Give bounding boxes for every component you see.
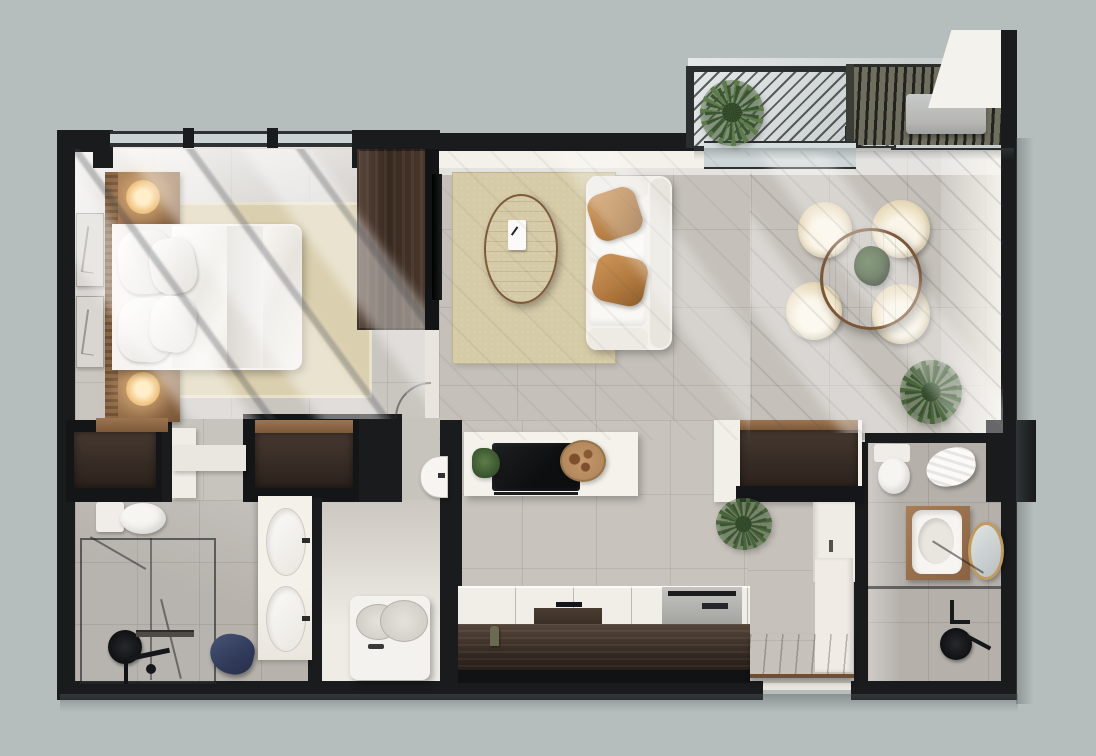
lighting — [0, 0, 1096, 756]
entry-wall-band — [815, 558, 853, 672]
wall-bottom-left — [57, 681, 763, 700]
pillow — [116, 228, 176, 296]
sofa-backrest — [650, 178, 670, 348]
table-lamp — [126, 372, 160, 406]
hall-cabinet-frame — [736, 486, 864, 502]
mullion-shadow — [170, 149, 425, 419]
bedroom-window — [110, 131, 356, 147]
closet-bench — [172, 445, 246, 471]
tall-white-unit — [813, 502, 855, 582]
bedroom-rug — [172, 202, 372, 398]
balcony-terrace-floor — [688, 58, 1004, 148]
bedroom-light-shafts — [75, 149, 425, 419]
cabinet-wood-front — [458, 624, 750, 674]
light-shaft — [544, 151, 750, 440]
dining-chair — [786, 282, 842, 340]
railing-shadow-hatch — [750, 151, 1003, 433]
light-shaft — [235, 149, 425, 419]
dining-light-shafts — [750, 151, 1003, 433]
entry-wood-mat — [750, 634, 854, 678]
washing-machine — [350, 596, 430, 680]
sliding-glass-door — [704, 141, 856, 169]
building-shadow-bottom — [60, 694, 1018, 712]
sofa-seat-cushion — [588, 200, 646, 262]
bottle — [490, 626, 499, 646]
bathroom-guest-floor — [868, 442, 1001, 683]
sofa-seat-cushion — [588, 264, 646, 326]
closet-bench — [172, 428, 196, 498]
shower-head — [940, 628, 972, 660]
vanity-sink — [266, 586, 306, 652]
wall-hung-basin — [420, 456, 448, 498]
washer-lid — [356, 604, 400, 640]
glass-brace — [932, 540, 984, 573]
washer-lid — [380, 600, 428, 642]
dining-chair — [872, 200, 930, 258]
toilet-tank — [874, 444, 910, 462]
tv-wall-strip — [425, 149, 439, 330]
wall-face-living — [436, 151, 716, 168]
building-shadows — [0, 0, 1096, 756]
walls — [0, 0, 1096, 756]
dresser-left-frame — [66, 420, 162, 502]
shower-glass-brace — [90, 536, 146, 570]
laundry — [0, 0, 1096, 756]
wall-right-block — [986, 420, 1036, 502]
wall-top-left-corner — [57, 130, 113, 152]
hall-cabinet-wood-front — [740, 430, 858, 488]
pillow — [145, 234, 200, 297]
balcony-railing-mesh — [690, 70, 896, 148]
wall-left — [57, 130, 75, 700]
wall-bottom-right — [851, 681, 1017, 700]
apartment-floor-base — [70, 143, 1005, 690]
light-shaft — [75, 149, 299, 419]
wall-art-frame — [76, 213, 104, 287]
faucet — [302, 538, 310, 543]
dresser-wood-front — [74, 432, 156, 488]
dining-chair — [872, 284, 930, 344]
tv-panel — [432, 174, 442, 300]
building-shadow-right — [1016, 138, 1034, 704]
hall-cabinet-base — [714, 420, 862, 502]
island-cooktop — [492, 443, 580, 491]
pergola-frame — [846, 64, 854, 142]
balcony — [0, 0, 1096, 756]
door-swing-arc — [395, 382, 431, 418]
wall-top-mid — [352, 130, 440, 168]
pillow — [116, 297, 175, 364]
nightstand — [118, 352, 180, 422]
glass-partition — [862, 586, 1002, 589]
vanity-sink — [266, 508, 306, 576]
dresser-wood-top — [255, 420, 353, 433]
entry — [0, 0, 1096, 756]
wall-balcony-right — [1001, 30, 1017, 148]
sofa-armrest — [588, 328, 648, 350]
accent-cushion — [584, 183, 646, 244]
toilet-tank — [96, 502, 124, 532]
living-dining-floor — [439, 151, 1003, 440]
laundry-floor — [322, 500, 448, 683]
balcony-door-track — [693, 133, 1003, 141]
mullion-shadow — [280, 149, 425, 419]
dresser-wood-front — [255, 433, 353, 488]
wall-bath-laundry — [308, 498, 322, 683]
herb-plant — [472, 448, 500, 478]
shower-handle — [128, 648, 170, 662]
book — [508, 220, 526, 250]
table-centerpiece-plant — [854, 246, 890, 286]
mullion-shadow — [75, 149, 342, 419]
dining-chair — [798, 202, 852, 258]
railing-corner-post — [845, 126, 861, 148]
light-shaft — [115, 149, 425, 419]
wall-bath-guest-top — [865, 433, 990, 443]
vanity-basin — [912, 510, 962, 574]
railing-left-post — [686, 66, 694, 148]
pergola-louvers — [850, 64, 1004, 145]
dining-table — [820, 228, 922, 330]
sofa-armrest — [588, 176, 648, 198]
sofa-base — [586, 176, 672, 350]
wood-vanity — [906, 506, 970, 580]
living-light-shafts — [439, 151, 750, 440]
exterior-white-wall — [928, 30, 1006, 108]
shower-pipe — [124, 660, 128, 684]
ac-unit — [906, 94, 986, 134]
white-towel — [924, 445, 979, 490]
balcony-shadow — [694, 148, 1014, 160]
dining-area — [0, 0, 1096, 756]
living-rug — [452, 172, 616, 364]
wall-laundry-kitchen — [440, 420, 462, 683]
oval-mirror — [968, 522, 1004, 580]
corridor-pier-large — [350, 414, 402, 502]
living-room — [0, 0, 1096, 756]
coffee-table — [484, 194, 558, 304]
washer-latch — [368, 644, 384, 649]
kitchen-countertop — [458, 586, 750, 628]
bathroom-main-floor — [75, 500, 310, 683]
railing-shadow-hatch — [439, 151, 750, 440]
hallway-closet — [0, 0, 1096, 756]
toilet-bowl — [878, 458, 910, 494]
dresser-right-frame — [243, 414, 359, 502]
kitchen — [0, 0, 1096, 756]
shower-glass-enclosure — [80, 538, 216, 684]
faucet — [302, 616, 310, 621]
wardrobe — [357, 149, 427, 330]
wall-entry-bath — [854, 442, 868, 683]
shower-knob — [146, 664, 156, 674]
serving-tray — [560, 440, 606, 482]
kitchen-island — [464, 432, 638, 496]
linear-drain — [136, 630, 194, 637]
bedroom-floor — [75, 148, 425, 422]
headboard-slat-wall — [105, 172, 121, 420]
floor-plan-render — [0, 0, 1096, 756]
bathroom-main — [0, 0, 1096, 756]
closet-corridor-floor — [75, 418, 445, 502]
light-shaft — [750, 151, 1003, 433]
kitchen-floor — [448, 420, 748, 683]
wall-right-lower — [1001, 502, 1017, 700]
dresser-wood-top — [96, 418, 168, 432]
accent-cushion — [590, 251, 651, 309]
lit-wall-band-right — [941, 151, 1003, 433]
shower-fixture — [950, 600, 970, 624]
toilet-bowl — [120, 503, 166, 534]
window-mullion — [183, 128, 194, 148]
shower-glass-door — [160, 599, 182, 679]
shower-head — [108, 630, 142, 664]
bathroom-guest — [0, 0, 1096, 756]
kitchen-sink — [534, 608, 602, 648]
hall-cabinet-wood-top — [740, 420, 858, 430]
blue-towel — [206, 630, 257, 678]
wall-top-dining — [891, 131, 1017, 150]
wall-right-upper — [1001, 131, 1017, 421]
wall-top-left-nub — [93, 130, 113, 168]
bedroom — [0, 0, 1096, 756]
pillow — [146, 293, 199, 355]
window-mullion — [267, 128, 278, 148]
hallway-plant — [716, 498, 772, 550]
cabinet-plinth — [458, 670, 750, 683]
shower-glass-panel — [150, 538, 152, 680]
double-bed — [112, 224, 302, 370]
double-vanity-counter — [258, 496, 312, 660]
shower-arm — [965, 634, 992, 651]
lit-wall-band-top — [439, 151, 1003, 175]
wall-art-frame — [76, 296, 104, 368]
railing-top-bar — [686, 66, 894, 72]
nightstand — [118, 172, 180, 244]
light-shaft — [750, 151, 944, 433]
bed-throw — [227, 226, 263, 368]
floors — [0, 0, 1096, 756]
table-lamp — [126, 180, 160, 214]
hallway-floor — [744, 430, 856, 683]
duvet — [172, 226, 302, 368]
stainless-range — [662, 587, 742, 625]
balcony-plant — [700, 80, 764, 146]
corridor-pier — [156, 420, 172, 502]
wall-top-living — [434, 133, 720, 151]
dining-floor-plant — [900, 360, 962, 424]
